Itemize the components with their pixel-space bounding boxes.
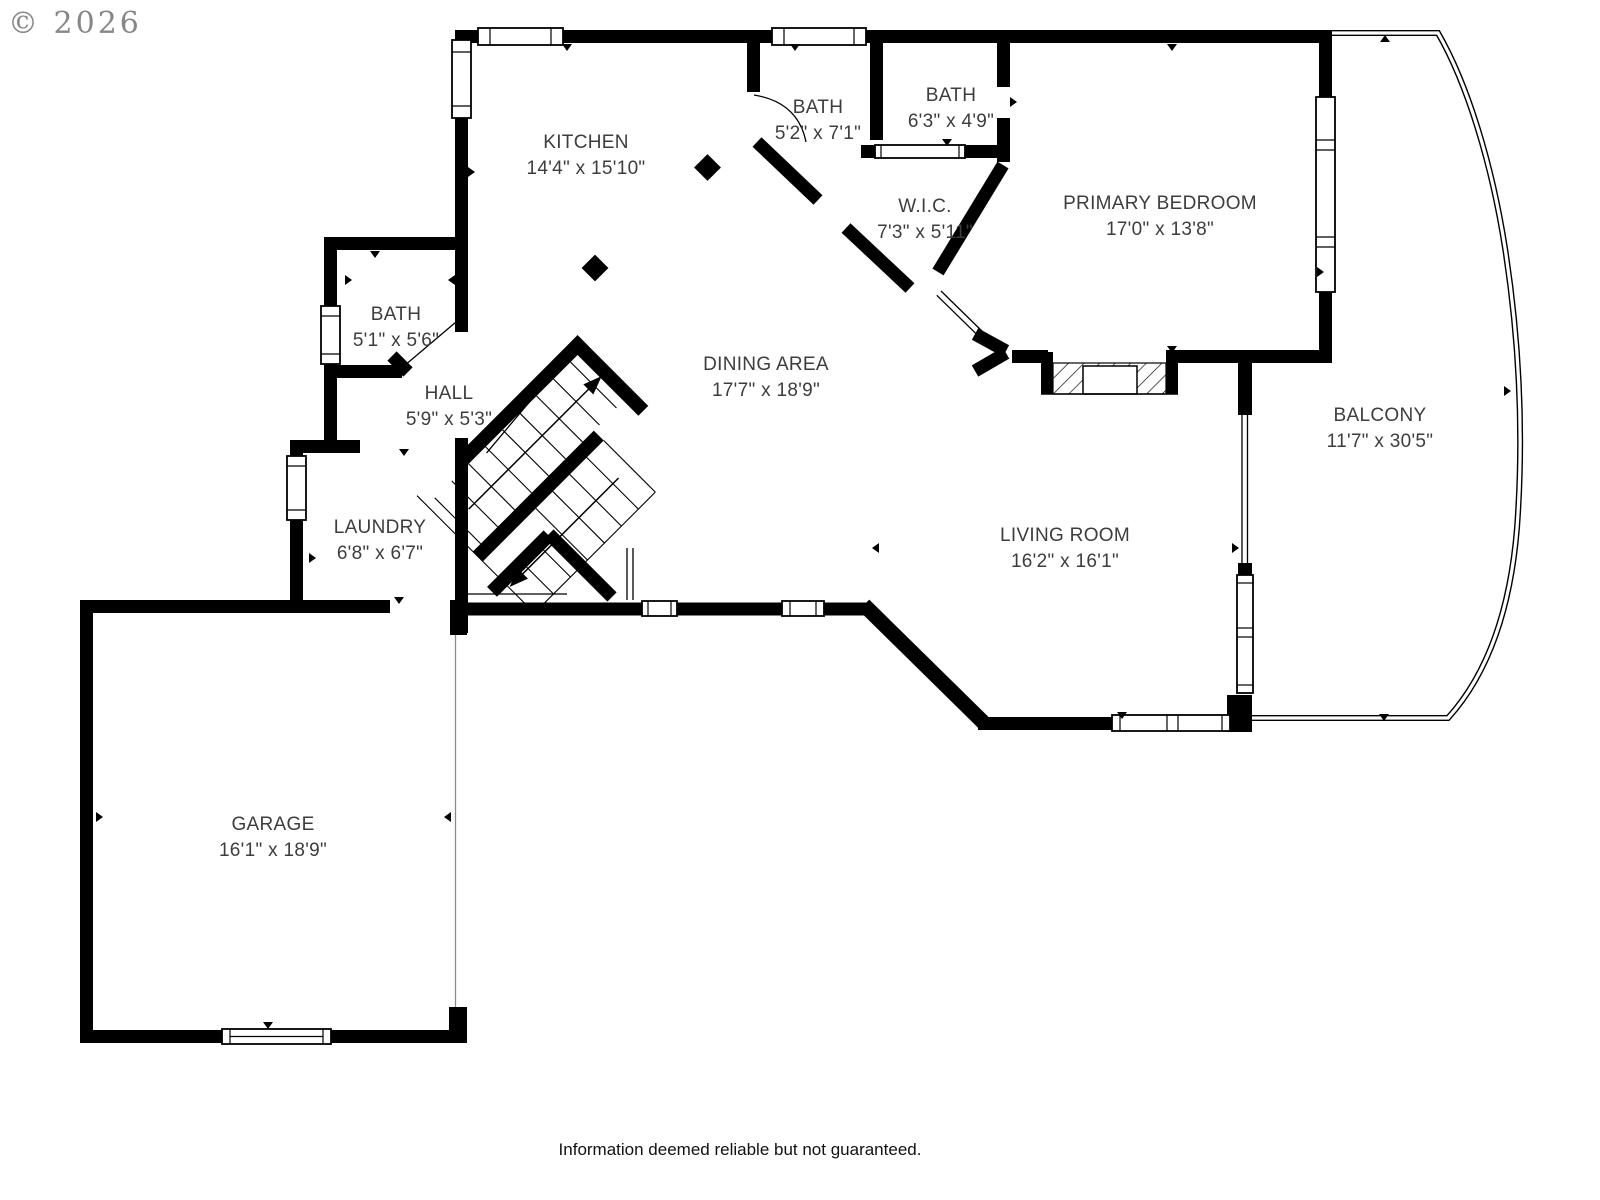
room-label-dining-area: DINING AREA 17'7" x 18'9" <box>703 352 829 404</box>
window-laundry-left <box>287 456 306 520</box>
room-name: BATH <box>775 95 861 121</box>
room-name: KITCHEN <box>527 130 646 156</box>
room-label-hall: HALL 5'9" x 5'3" <box>406 381 492 433</box>
room-dimensions: 16'1" x 18'9" <box>219 838 327 864</box>
room-name: BALCONY <box>1327 403 1434 429</box>
staircase <box>406 335 694 623</box>
room-label-wic: W.I.C. 7'3" x 5'11" <box>877 194 973 246</box>
floor-plan-page: © 2026 KITCHEN 14'4" x 15'10" BATH 5'2" … <box>0 0 1600 1200</box>
room-dimensions: 6'8" x 6'7" <box>334 541 427 567</box>
room-name: GARAGE <box>219 812 327 838</box>
room-label-laundry: LAUNDRY 6'8" x 6'7" <box>334 515 427 567</box>
floor-plan-drawing <box>0 0 1600 1200</box>
room-dimensions: 11'7" x 30'5" <box>1327 429 1434 455</box>
copyright-watermark: © 2026 <box>8 6 142 41</box>
window-bath-lower-left <box>321 306 340 364</box>
room-dimensions: 5'2" x 7'1" <box>775 121 861 147</box>
room-dimensions: 5'1" x 5'6" <box>353 328 439 354</box>
room-label-living-room: LIVING ROOM 16'2" x 16'1" <box>1000 523 1130 575</box>
room-dimensions: 5'9" x 5'3" <box>406 407 492 433</box>
room-name: LIVING ROOM <box>1000 523 1130 549</box>
room-dimensions: 7'3" x 5'11" <box>877 220 973 246</box>
room-name: PRIMARY BEDROOM <box>1063 191 1257 217</box>
room-name: HALL <box>406 381 492 407</box>
window-kitchen-top <box>478 28 563 45</box>
room-dimensions: 17'7" x 18'9" <box>703 378 829 404</box>
closet-slider <box>875 145 965 158</box>
room-dimensions: 17'0" x 13'8" <box>1063 217 1257 243</box>
room-dimensions: 16'2" x 16'1" <box>1000 549 1130 575</box>
window-dining-south-2 <box>782 601 824 616</box>
disclaimer-text: Information deemed reliable but not guar… <box>559 1140 922 1160</box>
room-name: BATH <box>353 302 439 328</box>
window-living-east <box>1237 575 1253 693</box>
room-label-kitchen: KITCHEN 14'4" x 15'10" <box>527 130 646 182</box>
room-name: BATH <box>908 83 994 109</box>
garage-door <box>222 1029 331 1044</box>
window-kitchen-left <box>452 40 471 118</box>
window-living-south <box>1112 715 1230 731</box>
balcony-outline <box>1252 33 1520 718</box>
fireplace <box>1041 350 1178 394</box>
room-label-bath-upper: BATH 5'2" x 7'1" <box>775 95 861 147</box>
room-label-primary-bedroom: PRIMARY BEDROOM 17'0" x 13'8" <box>1063 191 1257 243</box>
window-bath-top <box>772 28 866 45</box>
room-label-bath-lower: BATH 5'1" x 5'6" <box>353 302 439 354</box>
room-label-balcony: BALCONY 11'7" x 30'5" <box>1327 403 1434 455</box>
window-bedroom-east <box>1316 97 1335 292</box>
room-label-garage: GARAGE 16'1" x 18'9" <box>219 812 327 864</box>
room-label-bath-small: BATH 6'3" x 4'9" <box>908 83 994 135</box>
walls <box>80 30 1332 1043</box>
window-dining-south-1 <box>642 601 677 616</box>
room-dimensions: 14'4" x 15'10" <box>527 156 646 182</box>
room-name: LAUNDRY <box>334 515 427 541</box>
room-dimensions: 6'3" x 4'9" <box>908 109 994 135</box>
room-name: W.I.C. <box>877 194 973 220</box>
room-name: DINING AREA <box>703 352 829 378</box>
